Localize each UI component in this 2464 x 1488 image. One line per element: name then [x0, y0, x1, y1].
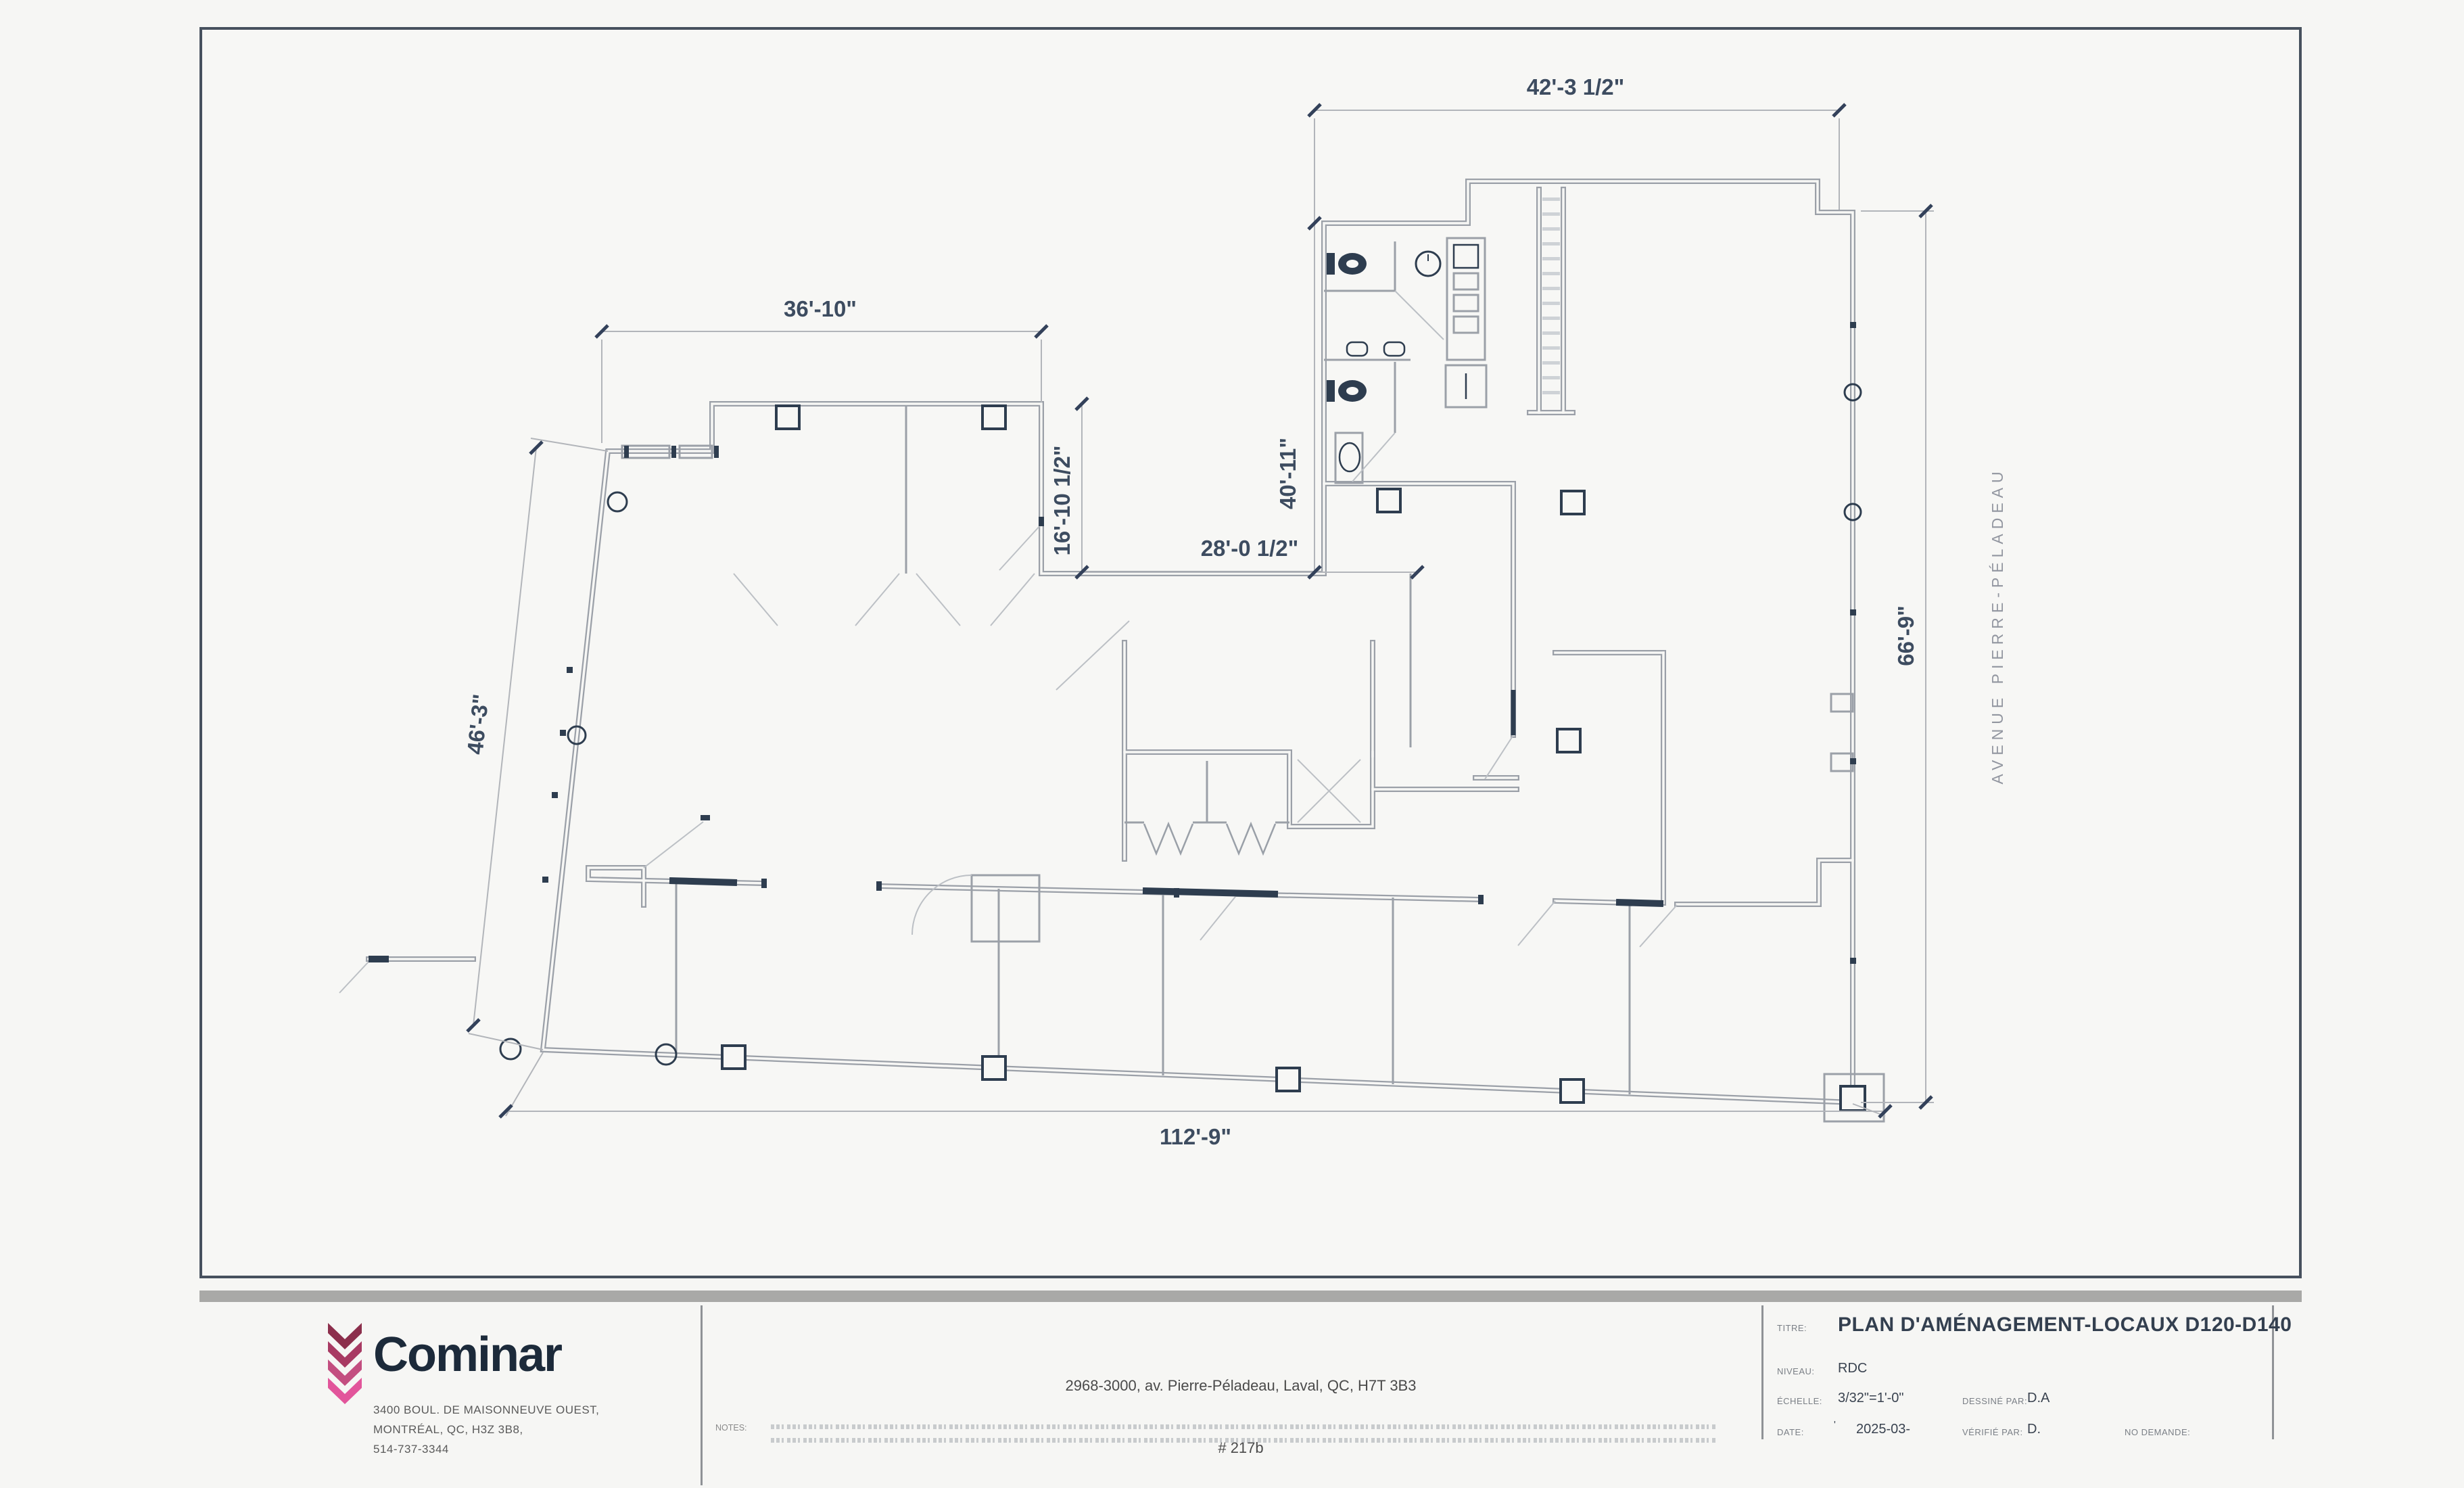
company-address-line1: 3400 BOUL. DE MAISONNEUVE OUEST,	[373, 1400, 599, 1420]
partitions	[622, 238, 1884, 1121]
cominar-wordmark: Cominar	[373, 1327, 561, 1382]
toilet-icon	[1327, 253, 1335, 275]
titleblock-divider	[701, 1305, 703, 1485]
toilet-icon	[1327, 380, 1335, 402]
dimension-ticks	[467, 104, 1932, 1117]
dimension-label-upper-left: 36'-10"	[784, 296, 857, 321]
verifie-par-label: VÉRIFIÉ PAR:	[1962, 1427, 2023, 1437]
titre-label: TITRE:	[1777, 1323, 1807, 1333]
dimension-label-40: 40'-11"	[1275, 438, 1300, 509]
street-label: AVENUE PIERRE-PÉLADEAU	[1989, 467, 2006, 784]
titleblock-divider	[1761, 1305, 1763, 1439]
dimension-label-right: 66'-9"	[1893, 605, 1918, 666]
dimension-label-top: 42'-3 1/2"	[1527, 74, 1625, 99]
dimension-label-bottom: 112'-9"	[1160, 1124, 1231, 1149]
cominar-chevron-icon	[327, 1323, 363, 1405]
drawing-title: PLAN D'AMÉNAGEMENT-LOCAUX D120-D140	[1838, 1313, 2292, 1336]
echelle-label: ÉCHELLE:	[1777, 1396, 1822, 1406]
cominar-logo	[327, 1323, 363, 1409]
company-address-line2: MONTRÉAL, QC, H3Z 3B8,	[373, 1420, 599, 1439]
verifie-par-value: D.	[2027, 1422, 2041, 1437]
washroom-fixtures	[1327, 245, 1478, 471]
echelle-value: 3/32"=1'-0"	[1838, 1391, 1904, 1406]
dessine-par-value: D.A	[2027, 1391, 2050, 1406]
notes-fineprint-line	[771, 1424, 1717, 1429]
dimension-label-28: 28'-0 1/2"	[1201, 536, 1299, 561]
floor-plan: 42'-3 1/2" 36'-10" 40'-11" 16'-10 1/2" 2…	[0, 0, 2464, 1488]
notes-fineprint-line	[771, 1438, 1717, 1443]
notes-label: NOTES:	[715, 1423, 747, 1433]
company-address: 3400 BOUL. DE MAISONNEUVE OUEST, MONTRÉA…	[373, 1400, 599, 1459]
drawing-sheet: 42'-3 1/2" 36'-10" 40'-11" 16'-10 1/2" 2…	[0, 0, 2464, 1488]
janitor-sink-icon	[1340, 443, 1360, 471]
columns	[500, 384, 1865, 1111]
dessine-par-label: DESSINÉ PAR:	[1962, 1396, 2027, 1406]
niveau-value: RDC	[1838, 1361, 1867, 1376]
lavatory-icon	[1384, 342, 1404, 356]
date-value: 2025-03-	[1856, 1422, 1910, 1437]
accordion-doors	[1144, 824, 1275, 854]
dimension-label-16: 16'-10 1/2"	[1049, 446, 1074, 556]
dimension-label-slant: 46'-3"	[462, 693, 493, 755]
project-address: 2968-3000, av. Pierre-Péladeau, Laval, Q…	[947, 1377, 1535, 1395]
company-phone: 514-737-3344	[373, 1439, 599, 1459]
date-prefix: '	[1834, 1419, 1836, 1431]
niveau-label: NIVEAU:	[1777, 1366, 1815, 1376]
titleblock-separator-bar	[199, 1291, 2302, 1302]
no-demande-label: NO DEMANDE:	[2125, 1427, 2190, 1437]
date-label: DATE:	[1777, 1427, 1804, 1437]
lavatory-icon	[1347, 342, 1367, 356]
dimension-lines	[469, 110, 1934, 1116]
